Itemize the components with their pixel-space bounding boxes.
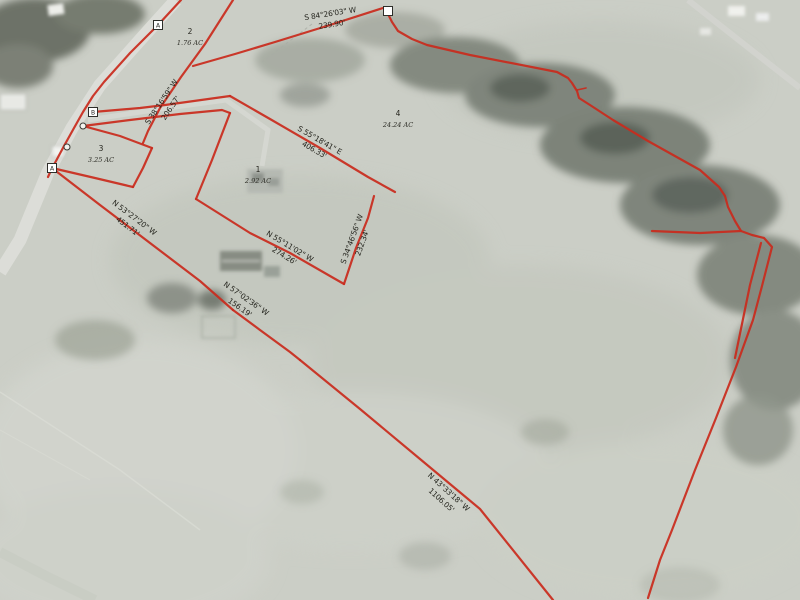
aerial-survey-map: S 84°26'03" W239.90'S 38°16'59" W206.57'… <box>0 0 800 600</box>
svg-text:2.92 AC: 2.92 AC <box>244 177 271 185</box>
pin-marker <box>64 144 70 150</box>
svg-text:4: 4 <box>396 109 401 118</box>
svg-text:2: 2 <box>188 27 193 36</box>
svg-text:1: 1 <box>256 165 261 174</box>
svg-text:24.24 AC: 24.24 AC <box>382 121 413 129</box>
pin-marker <box>80 123 86 129</box>
corner-marker-letter: B <box>91 110 95 117</box>
survey-map-viewport[interactable]: S 84°26'03" W239.90'S 38°16'59" W206.57'… <box>0 0 800 600</box>
svg-text:1.76 AC: 1.76 AC <box>177 39 203 47</box>
svg-text:3.25 AC: 3.25 AC <box>88 156 114 164</box>
svg-text:3: 3 <box>99 144 104 153</box>
monument-marker <box>384 7 393 16</box>
